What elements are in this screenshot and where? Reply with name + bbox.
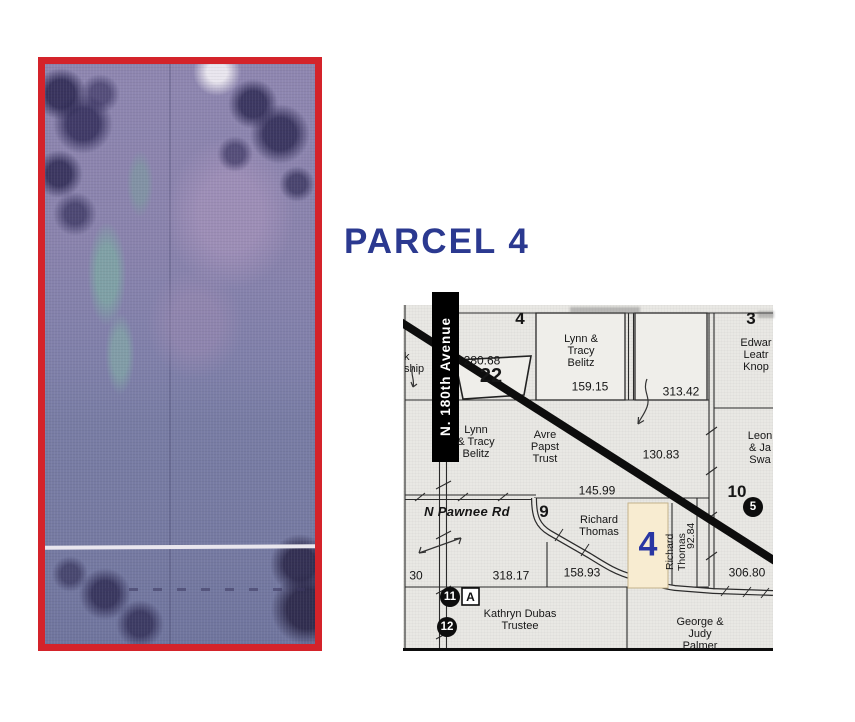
faded-text-smudge <box>758 311 774 318</box>
owner-label-belitz-north: Lynn & Tracy Belitz <box>564 334 598 370</box>
faded-text-smudge <box>570 307 640 313</box>
page-title: PARCEL 4 <box>344 222 530 262</box>
section-number-9: 9 <box>539 503 548 521</box>
owner-label-knopik-cut: Edwar Leatr Knop <box>735 338 777 374</box>
marker-box-a: A <box>466 590 475 604</box>
owner-label-richard-thomas: Richard Thomas <box>579 515 619 539</box>
owner-label-kathryn-dubas: Kathryn Dubas Trustee <box>484 609 557 633</box>
section-number-10: 10 <box>728 483 747 501</box>
section-number-3: 3 <box>746 310 755 328</box>
road-label-n-180th-avenue: N. 180th Avenue <box>432 292 459 462</box>
measurement-130-83: 130.83 <box>643 449 680 462</box>
parcel-4-number: 4 <box>639 527 658 564</box>
measurement-313-42: 313.42 <box>663 386 700 399</box>
measurement-159-15: 159.15 <box>572 381 609 394</box>
photo-dashed-road-line <box>105 588 305 591</box>
marker-circle-12: 12 <box>441 621 454 633</box>
measurement-158-93: 158.93 <box>564 567 601 580</box>
measurement-318-17: 318.17 <box>493 570 530 583</box>
owner-label-avre-papst-trust: Avre Papst Trust <box>531 430 559 466</box>
owner-label-george-judy-palmer: George & Judy Palmer <box>664 617 737 653</box>
owner-label-swanson-cut: Leon & Ja Swa <box>741 431 779 467</box>
section-number-22: 22 <box>480 366 502 388</box>
measurement-280-68: 280.68 <box>464 355 501 368</box>
owner-label-township-cut: k ship <box>404 352 424 376</box>
road-label-n-180th-avenue-text: N. 180th Avenue <box>438 317 453 436</box>
owner-label-richard-thomas-vertical: Richard Thomas <box>664 519 692 585</box>
owner-label-belitz-west: Lynn & Tracy Belitz <box>457 425 494 461</box>
road-label-n-pawnee-rd: N Pawnee Rd <box>424 505 510 519</box>
plat-map: N. 180th Avenue N Pawnee Rd 4 3 9 10 22 … <box>403 305 773 651</box>
measurement-306-80: 306.80 <box>729 567 766 580</box>
marker-circle-11: 11 <box>444 591 456 603</box>
section-number-4: 4 <box>515 310 524 328</box>
marker-circle-5: 5 <box>750 501 756 513</box>
measurement-145-99: 145.99 <box>579 485 616 498</box>
aerial-photo-noise <box>45 64 315 644</box>
aerial-photo-frame <box>38 57 322 651</box>
measurement-30: 30 <box>409 570 422 583</box>
